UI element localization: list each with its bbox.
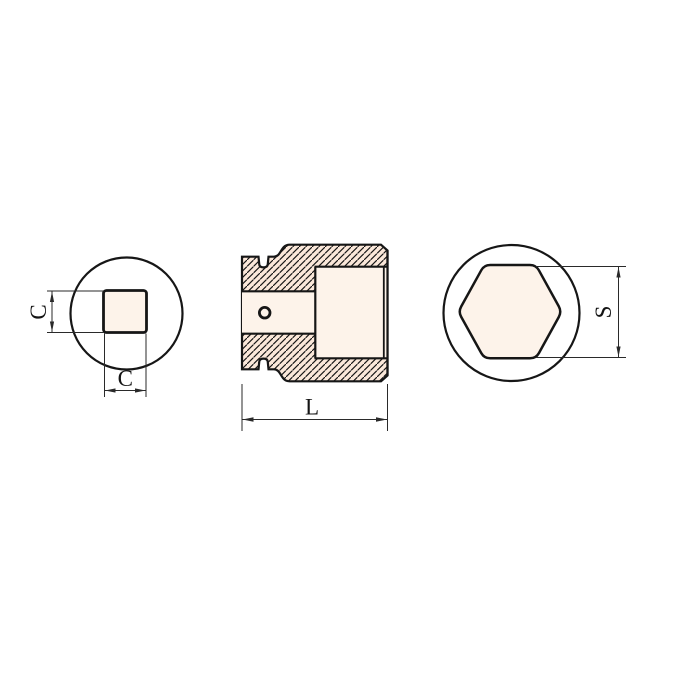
square-drive-hole	[104, 291, 147, 333]
label-overall-length: L	[305, 395, 319, 420]
section-view: L	[242, 245, 388, 431]
arrowhead-left	[105, 388, 116, 392]
technical-drawing-canvas: C C	[0, 0, 700, 700]
arrowhead-down	[50, 322, 54, 333]
socket-drawing-svg: C C	[0, 0, 700, 700]
pin-hole	[259, 307, 270, 318]
label-drive-size-horizontal: C	[118, 366, 133, 391]
arrowhead-right	[135, 388, 146, 392]
hex-socket-opening	[460, 265, 561, 358]
arrowhead-down	[616, 347, 620, 358]
front-view: C C	[26, 258, 183, 398]
label-drive-size-vertical: C	[26, 304, 51, 319]
arrowhead-up	[616, 267, 620, 278]
label-across-flats: S	[591, 306, 616, 319]
hex-view: S	[444, 245, 627, 381]
arrowhead-left	[243, 417, 254, 421]
hex-cavity	[315, 267, 388, 359]
arrowhead-up	[50, 292, 54, 303]
dimension-c-horizontal: C	[105, 334, 147, 398]
dimension-c-vertical: C	[26, 291, 104, 333]
arrowhead-right	[376, 417, 387, 421]
dimension-l: L	[242, 384, 388, 431]
square-drive-cavity	[242, 291, 315, 333]
